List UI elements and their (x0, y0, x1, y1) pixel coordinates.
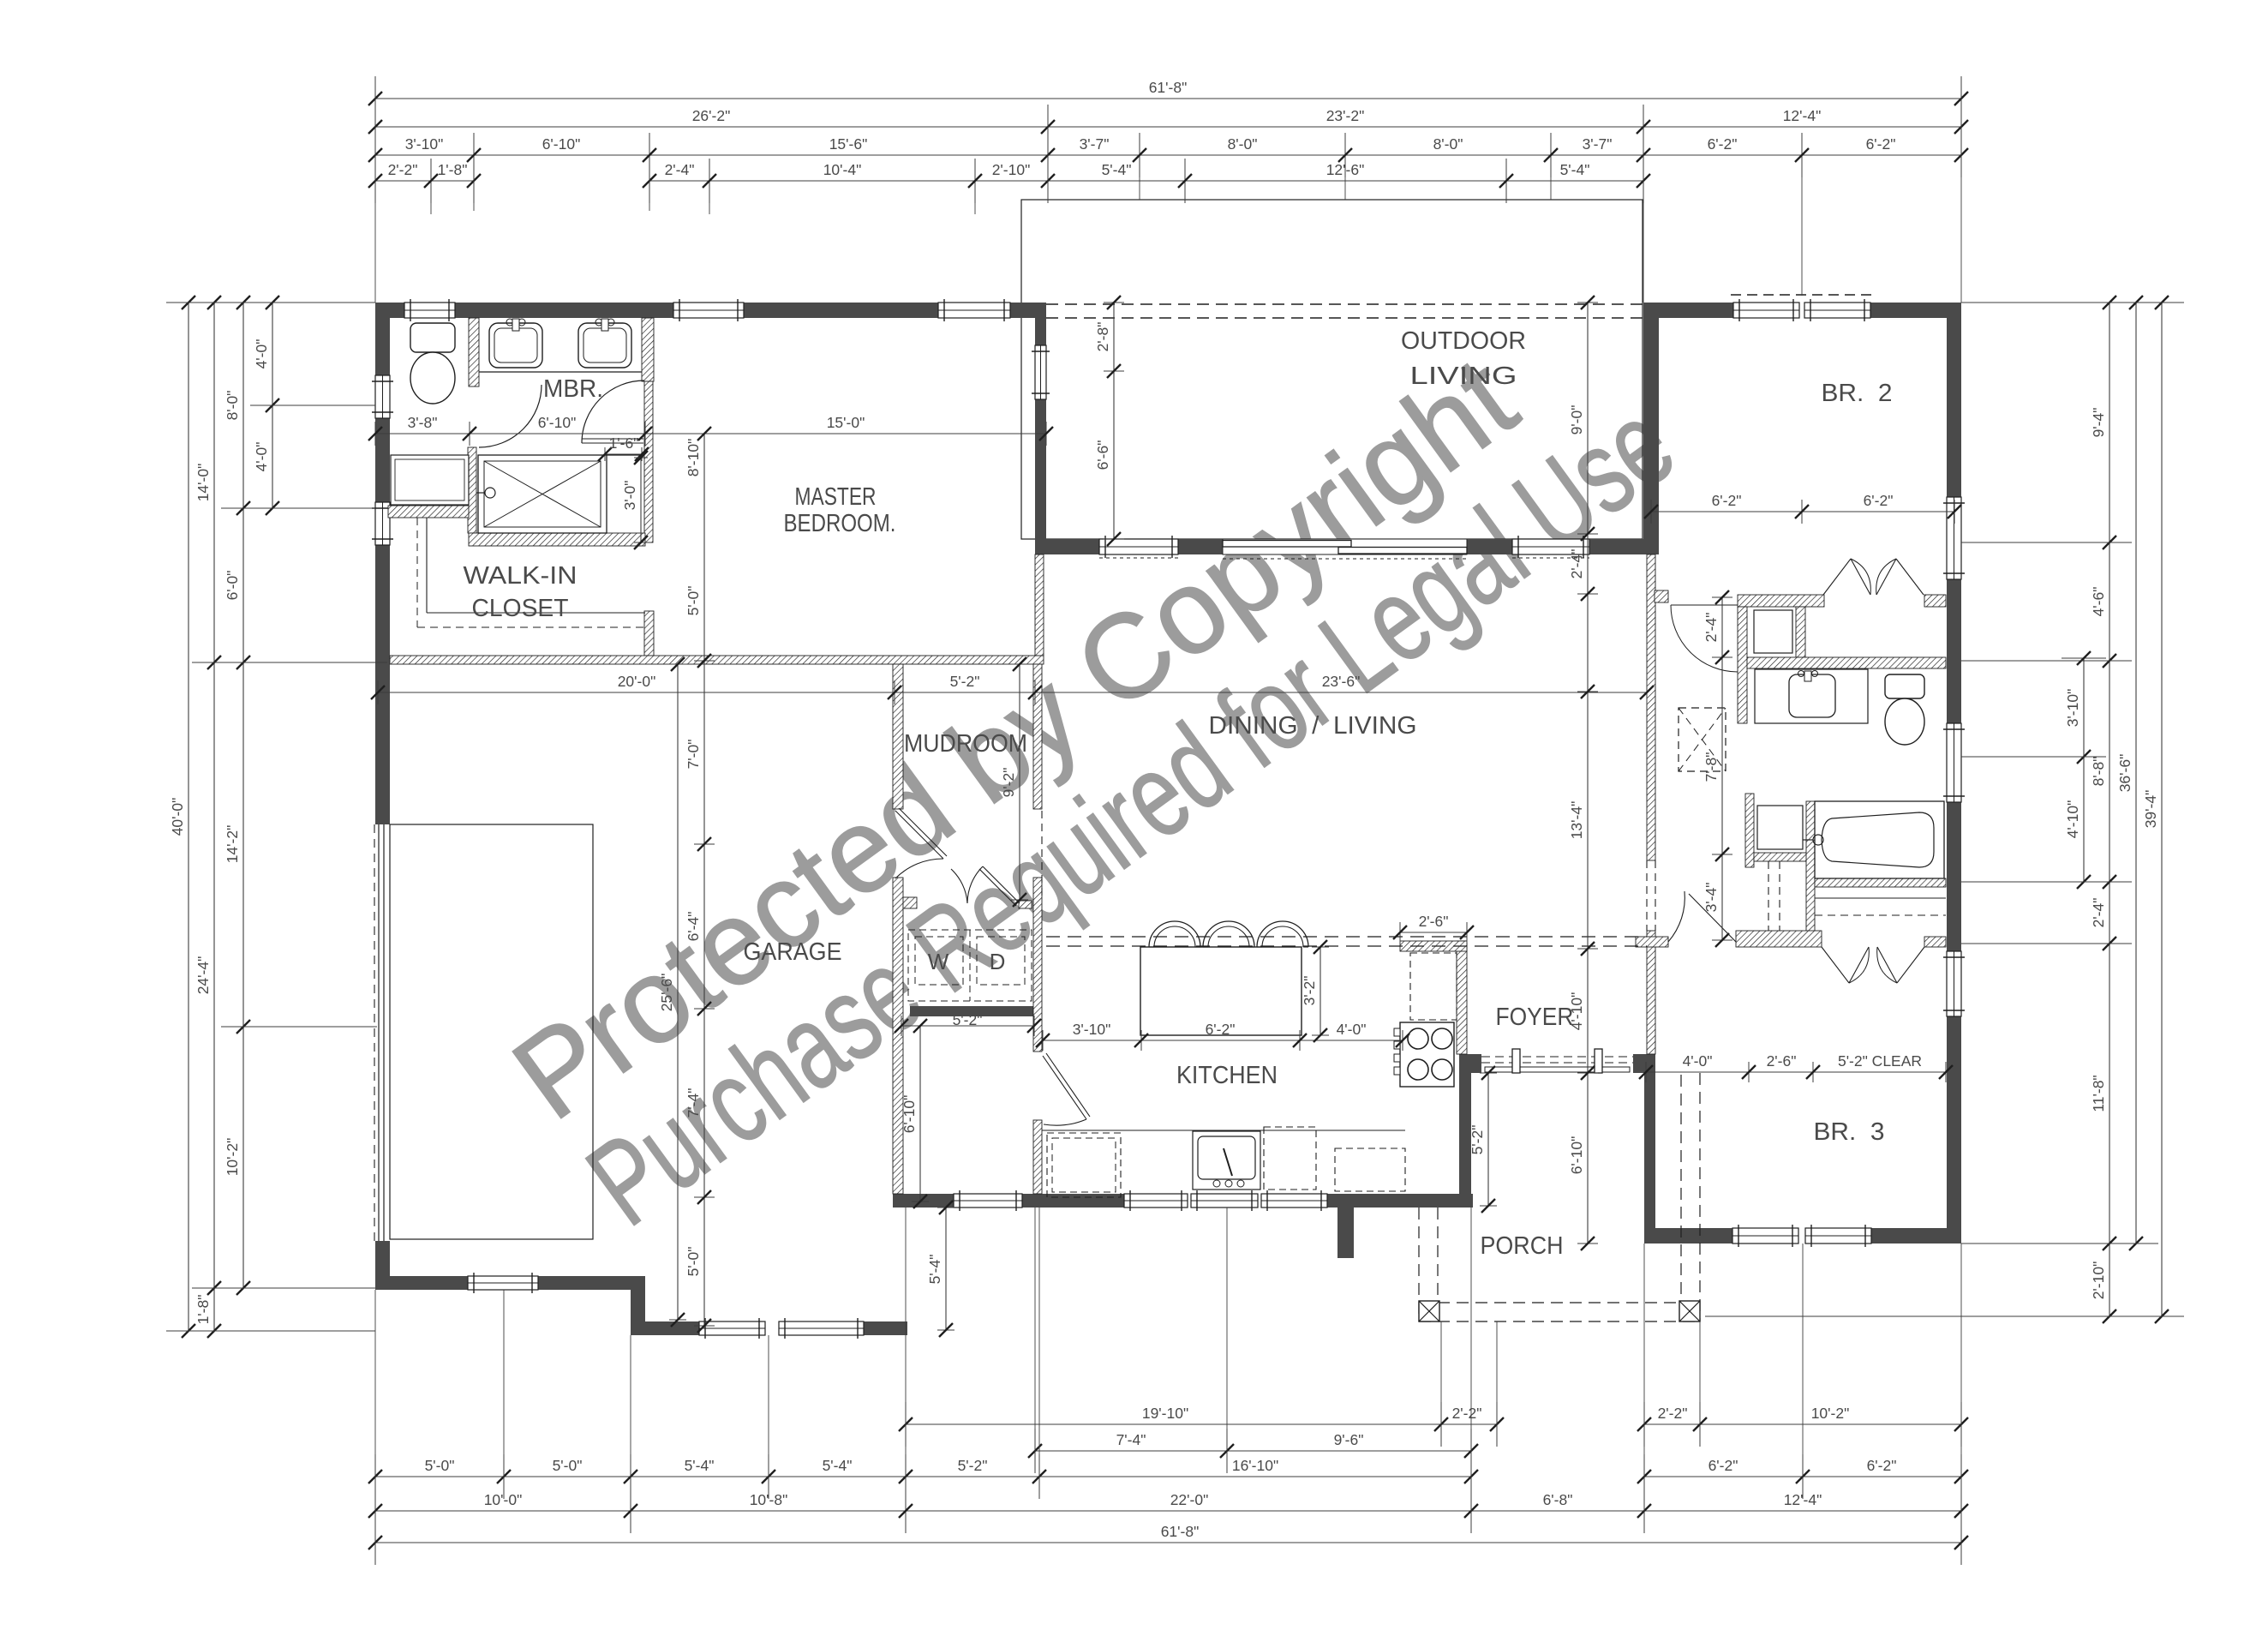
svg-text:10'-8": 10'-8" (750, 1491, 788, 1508)
svg-text:5'-0": 5'-0" (685, 586, 702, 616)
svg-text:PORCH: PORCH (1481, 1232, 1564, 1260)
svg-text:19'-10": 19'-10" (1142, 1405, 1188, 1422)
svg-text:4'-0": 4'-0" (253, 442, 270, 472)
svg-text:DINING / LIVING: DINING / LIVING (1209, 712, 1417, 740)
svg-text:6'-2": 6'-2" (1708, 1457, 1738, 1474)
svg-text:25'-6": 25'-6" (658, 974, 675, 1012)
svg-text:2'-4": 2'-4" (1568, 549, 1585, 579)
svg-text:16'-10": 16'-10" (1232, 1457, 1278, 1474)
svg-text:5'-2": 5'-2" (1469, 1125, 1486, 1155)
svg-text:3'-0": 3'-0" (621, 481, 638, 511)
svg-text:23'-6": 23'-6" (1322, 673, 1361, 690)
svg-text:10'-2": 10'-2" (224, 1138, 241, 1177)
svg-text:5'-0": 5'-0" (685, 1247, 702, 1277)
svg-text:MUDROOM: MUDROOM (904, 730, 1027, 758)
svg-text:OUTDOOR: OUTDOOR (1401, 327, 1526, 355)
svg-text:6'-10": 6'-10" (542, 135, 581, 153)
svg-text:LIVING: LIVING (1410, 363, 1517, 390)
svg-text:BEDROOM.: BEDROOM. (784, 510, 896, 537)
svg-text:4'-0": 4'-0" (1683, 1052, 1713, 1070)
svg-text:6'-4": 6'-4" (685, 912, 702, 942)
svg-text:5'-4": 5'-4" (685, 1457, 715, 1474)
svg-text:8'-0": 8'-0" (1228, 135, 1258, 153)
svg-text:39'-4": 39'-4" (2142, 790, 2159, 829)
svg-text:14'-2": 14'-2" (224, 825, 241, 864)
svg-text:6'-2": 6'-2" (1206, 1021, 1236, 1038)
svg-text:8'-0": 8'-0" (1433, 135, 1463, 153)
svg-text:8'-10": 8'-10" (685, 439, 702, 477)
svg-text:D: D (990, 949, 1006, 974)
svg-text:2'-2": 2'-2" (388, 161, 418, 178)
svg-text:7'-0": 7'-0" (685, 740, 702, 770)
svg-text:4'-6": 4'-6" (2090, 587, 2107, 617)
svg-text:9'-4": 9'-4" (2090, 408, 2107, 438)
svg-text:5'-4": 5'-4" (926, 1255, 943, 1285)
svg-text:FOYER: FOYER (1496, 1004, 1574, 1031)
svg-text:3'-2": 3'-2" (1301, 976, 1318, 1006)
svg-text:3'-10": 3'-10" (1073, 1021, 1111, 1038)
svg-text:6'-2": 6'-2" (1864, 492, 1894, 509)
svg-text:8'-8": 8'-8" (2090, 757, 2107, 787)
svg-text:BR. 2: BR. 2 (1822, 380, 1893, 407)
svg-text:2'-6": 2'-6" (1767, 1052, 1797, 1070)
svg-text:1'-8": 1'-8" (194, 1295, 212, 1325)
svg-text:3'-7": 3'-7" (1583, 135, 1613, 153)
svg-text:10'-2": 10'-2" (1811, 1405, 1850, 1422)
svg-text:3'-7": 3'-7" (1080, 135, 1110, 153)
svg-text:5'-2" CLEAR: 5'-2" CLEAR (1838, 1052, 1922, 1070)
svg-text:7'-4": 7'-4" (1116, 1431, 1146, 1448)
svg-text:5'-2": 5'-2" (950, 673, 980, 690)
svg-text:23'-2": 23'-2" (1326, 107, 1365, 124)
svg-text:2'-6": 2'-6" (1419, 913, 1449, 930)
svg-text:5'-0": 5'-0" (425, 1457, 455, 1474)
svg-text:2'-2": 2'-2" (1658, 1405, 1688, 1422)
svg-text:5'-2": 5'-2" (953, 1011, 983, 1028)
svg-text:20'-0": 20'-0" (618, 673, 656, 690)
svg-text:15'-0": 15'-0" (827, 414, 865, 431)
svg-text:W: W (928, 949, 949, 974)
svg-text:4'-10": 4'-10" (1568, 992, 1585, 1031)
svg-text:8'-0": 8'-0" (224, 391, 241, 421)
svg-text:24'-4": 24'-4" (194, 956, 212, 995)
svg-text:4'-10": 4'-10" (2064, 800, 2081, 839)
svg-text:5'-4": 5'-4" (1102, 161, 1132, 178)
svg-text:12'-4": 12'-4" (1783, 107, 1822, 124)
svg-text:4'-0": 4'-0" (1337, 1021, 1367, 1038)
svg-text:13'-4": 13'-4" (1568, 801, 1585, 840)
svg-text:6'-2": 6'-2" (1867, 1457, 1897, 1474)
svg-text:40'-0": 40'-0" (169, 798, 186, 836)
svg-text:6'-2": 6'-2" (1712, 492, 1742, 509)
svg-text:14'-0": 14'-0" (194, 464, 212, 502)
svg-text:9'-0": 9'-0" (1568, 405, 1585, 435)
svg-text:6'-2": 6'-2" (1866, 135, 1896, 153)
svg-text:7'-8": 7'-8" (1702, 752, 1720, 782)
svg-text:3'-8": 3'-8" (408, 414, 438, 431)
svg-text:61'-8": 61'-8" (1161, 1523, 1200, 1540)
svg-text:2'-4": 2'-4" (665, 161, 695, 178)
svg-text:6'-10": 6'-10" (1568, 1136, 1585, 1175)
svg-text:10'-0": 10'-0" (484, 1491, 523, 1508)
svg-text:4'-0": 4'-0" (253, 339, 270, 369)
svg-text:KITCHEN: KITCHEN (1176, 1062, 1278, 1089)
svg-text:26'-2": 26'-2" (692, 107, 731, 124)
svg-text:36'-6": 36'-6" (2116, 754, 2133, 793)
svg-text:15'-6": 15'-6" (829, 135, 868, 153)
svg-text:CLOSET: CLOSET (472, 595, 569, 622)
svg-text:5'-0": 5'-0" (553, 1457, 583, 1474)
svg-text:2'-2": 2'-2" (1452, 1405, 1482, 1422)
svg-text:3'-10": 3'-10" (405, 135, 444, 153)
svg-text:MBR.: MBR. (543, 375, 603, 403)
svg-text:5'-4": 5'-4" (1560, 161, 1590, 178)
svg-text:BR. 3: BR. 3 (1814, 1118, 1885, 1146)
svg-text:1'-8": 1'-8" (438, 161, 468, 178)
svg-text:6'-2": 6'-2" (1708, 135, 1738, 153)
svg-text:5'-2": 5'-2" (958, 1457, 988, 1474)
svg-text:6'-0": 6'-0" (224, 571, 241, 601)
svg-text:22'-0": 22'-0" (1170, 1491, 1209, 1508)
svg-text:6'-10": 6'-10" (538, 414, 577, 431)
svg-text:10'-4": 10'-4" (823, 161, 862, 178)
svg-text:5'-4": 5'-4" (823, 1457, 853, 1474)
svg-text:2'-8": 2'-8" (1094, 322, 1111, 352)
svg-text:7'-4": 7'-4" (685, 1088, 702, 1118)
svg-text:61'-8": 61'-8" (1149, 79, 1188, 96)
svg-text:GARAGE: GARAGE (744, 938, 842, 966)
svg-text:3'-10": 3'-10" (2064, 689, 2081, 728)
svg-text:3'-4": 3'-4" (1702, 883, 1720, 913)
svg-text:WALK-IN: WALK-IN (464, 562, 577, 590)
svg-text:1'-6": 1'-6" (609, 434, 639, 452)
svg-text:11'-8": 11'-8" (2090, 1075, 2107, 1112)
svg-text:2'-10": 2'-10" (992, 161, 1031, 178)
svg-text:9'-6": 9'-6" (1334, 1431, 1364, 1448)
svg-text:6'-6": 6'-6" (1094, 440, 1111, 470)
svg-text:MASTER: MASTER (795, 483, 877, 511)
svg-text:6'-10": 6'-10" (901, 1095, 918, 1134)
svg-text:2'-4": 2'-4" (2090, 898, 2107, 928)
svg-text:6'-8": 6'-8" (1543, 1491, 1573, 1508)
svg-text:12'-4": 12'-4" (1784, 1491, 1822, 1508)
svg-text:9'-2": 9'-2" (1000, 768, 1017, 798)
svg-text:2'-10": 2'-10" (2090, 1261, 2107, 1300)
svg-text:2'-4": 2'-4" (1702, 613, 1720, 643)
